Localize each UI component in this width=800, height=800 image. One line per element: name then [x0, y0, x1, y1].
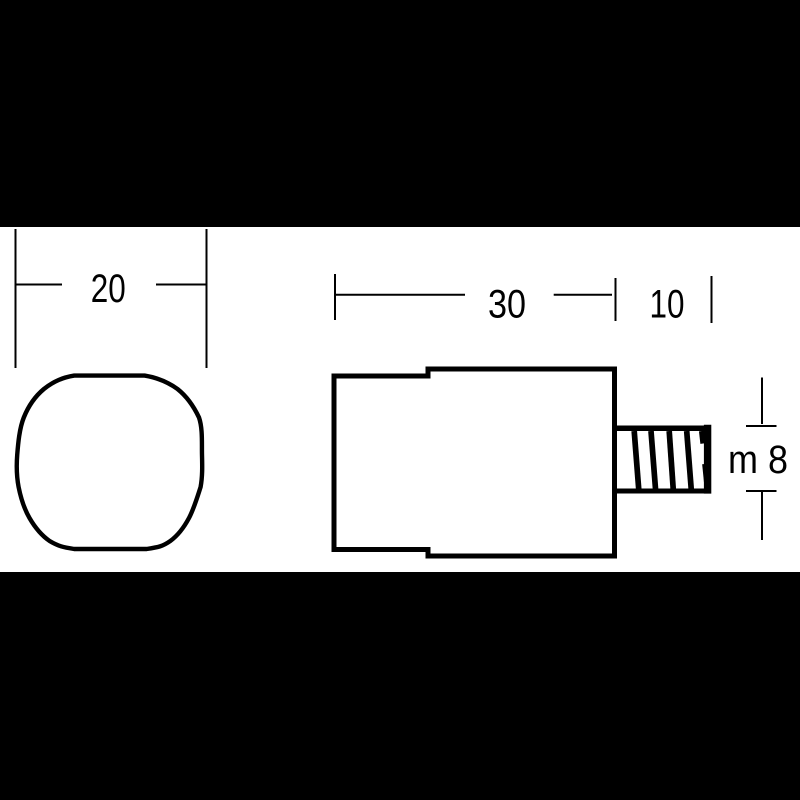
svg-text:m 8: m 8	[728, 438, 788, 482]
svg-text:10: 10	[650, 283, 685, 327]
svg-text:30: 30	[488, 283, 526, 327]
svg-text:20: 20	[91, 267, 126, 311]
